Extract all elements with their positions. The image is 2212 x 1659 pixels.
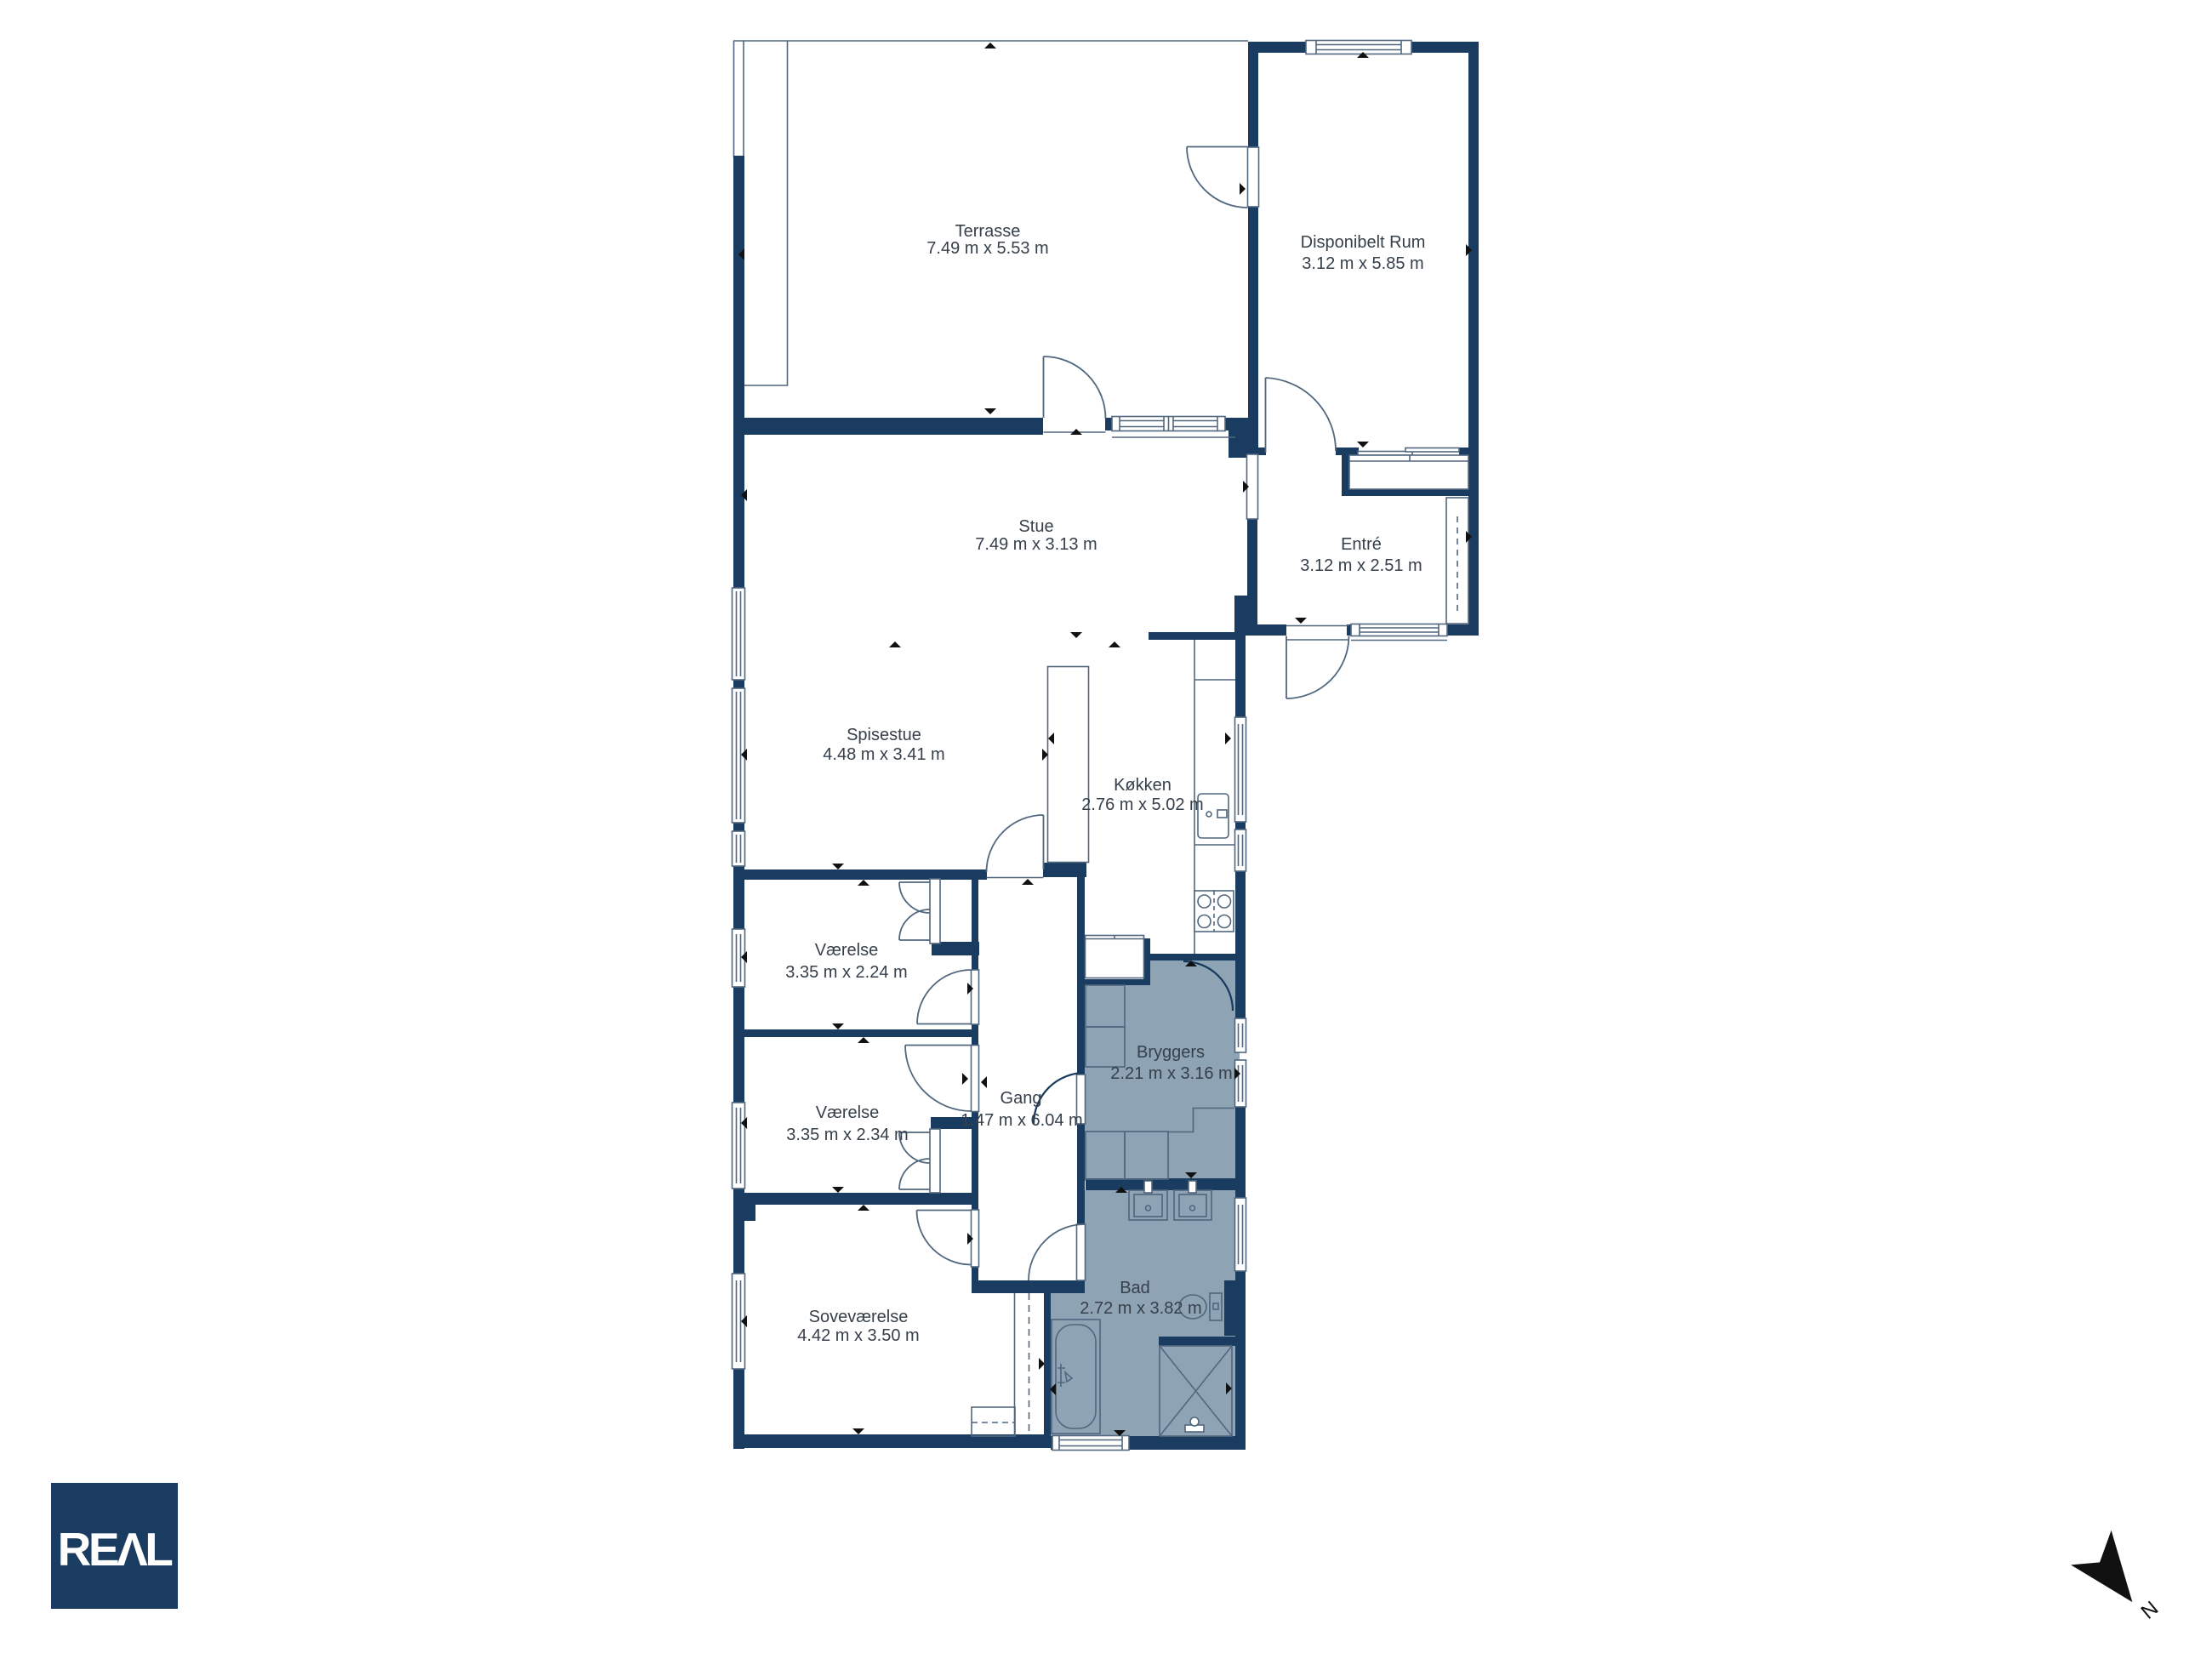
svg-text:REΛL: REΛL — [58, 1523, 173, 1576]
svg-text:3.12 m x 5.85 m: 3.12 m x 5.85 m — [1302, 254, 1423, 273]
svg-text:Værelse: Værelse — [815, 941, 878, 960]
svg-text:Køkken: Køkken — [1114, 776, 1172, 795]
svg-text:1.47 m x 6.04 m: 1.47 m x 6.04 m — [961, 1111, 1082, 1130]
svg-text:Entré: Entré — [1341, 535, 1382, 554]
svg-text:Soveværelse: Soveværelse — [809, 1308, 909, 1326]
svg-text:Spisestue: Spisestue — [847, 726, 921, 744]
svg-text:3.35 m x 2.24 m: 3.35 m x 2.24 m — [785, 963, 907, 982]
svg-text:Bryggers: Bryggers — [1137, 1043, 1205, 1062]
svg-text:Værelse: Værelse — [816, 1103, 879, 1122]
svg-text:4.48 m x 3.41 m: 4.48 m x 3.41 m — [823, 745, 944, 764]
svg-text:2.21 m x 3.16 m: 2.21 m x 3.16 m — [1110, 1064, 1232, 1083]
svg-text:7.49 m x 3.13 m: 7.49 m x 3.13 m — [975, 535, 1097, 554]
svg-text:2.76 m x 5.02 m: 2.76 m x 5.02 m — [1081, 795, 1203, 814]
svg-text:4.42 m x 3.50 m: 4.42 m x 3.50 m — [797, 1326, 919, 1345]
svg-text:Stue: Stue — [1018, 517, 1053, 536]
svg-text:Gang: Gang — [1001, 1089, 1042, 1108]
svg-text:Disponibelt Rum: Disponibelt Rum — [1301, 233, 1426, 252]
svg-text:3.35 m x 2.34 m: 3.35 m x 2.34 m — [786, 1126, 908, 1144]
svg-text:Bad: Bad — [1120, 1279, 1150, 1297]
svg-text:7.49 m x 5.53 m: 7.49 m x 5.53 m — [926, 239, 1048, 258]
svg-text:Terrasse: Terrasse — [955, 222, 1021, 241]
svg-text:3.12 m x 2.51 m: 3.12 m x 2.51 m — [1300, 556, 1422, 575]
svg-text:2.72 m x 3.82 m: 2.72 m x 3.82 m — [1080, 1299, 1201, 1318]
